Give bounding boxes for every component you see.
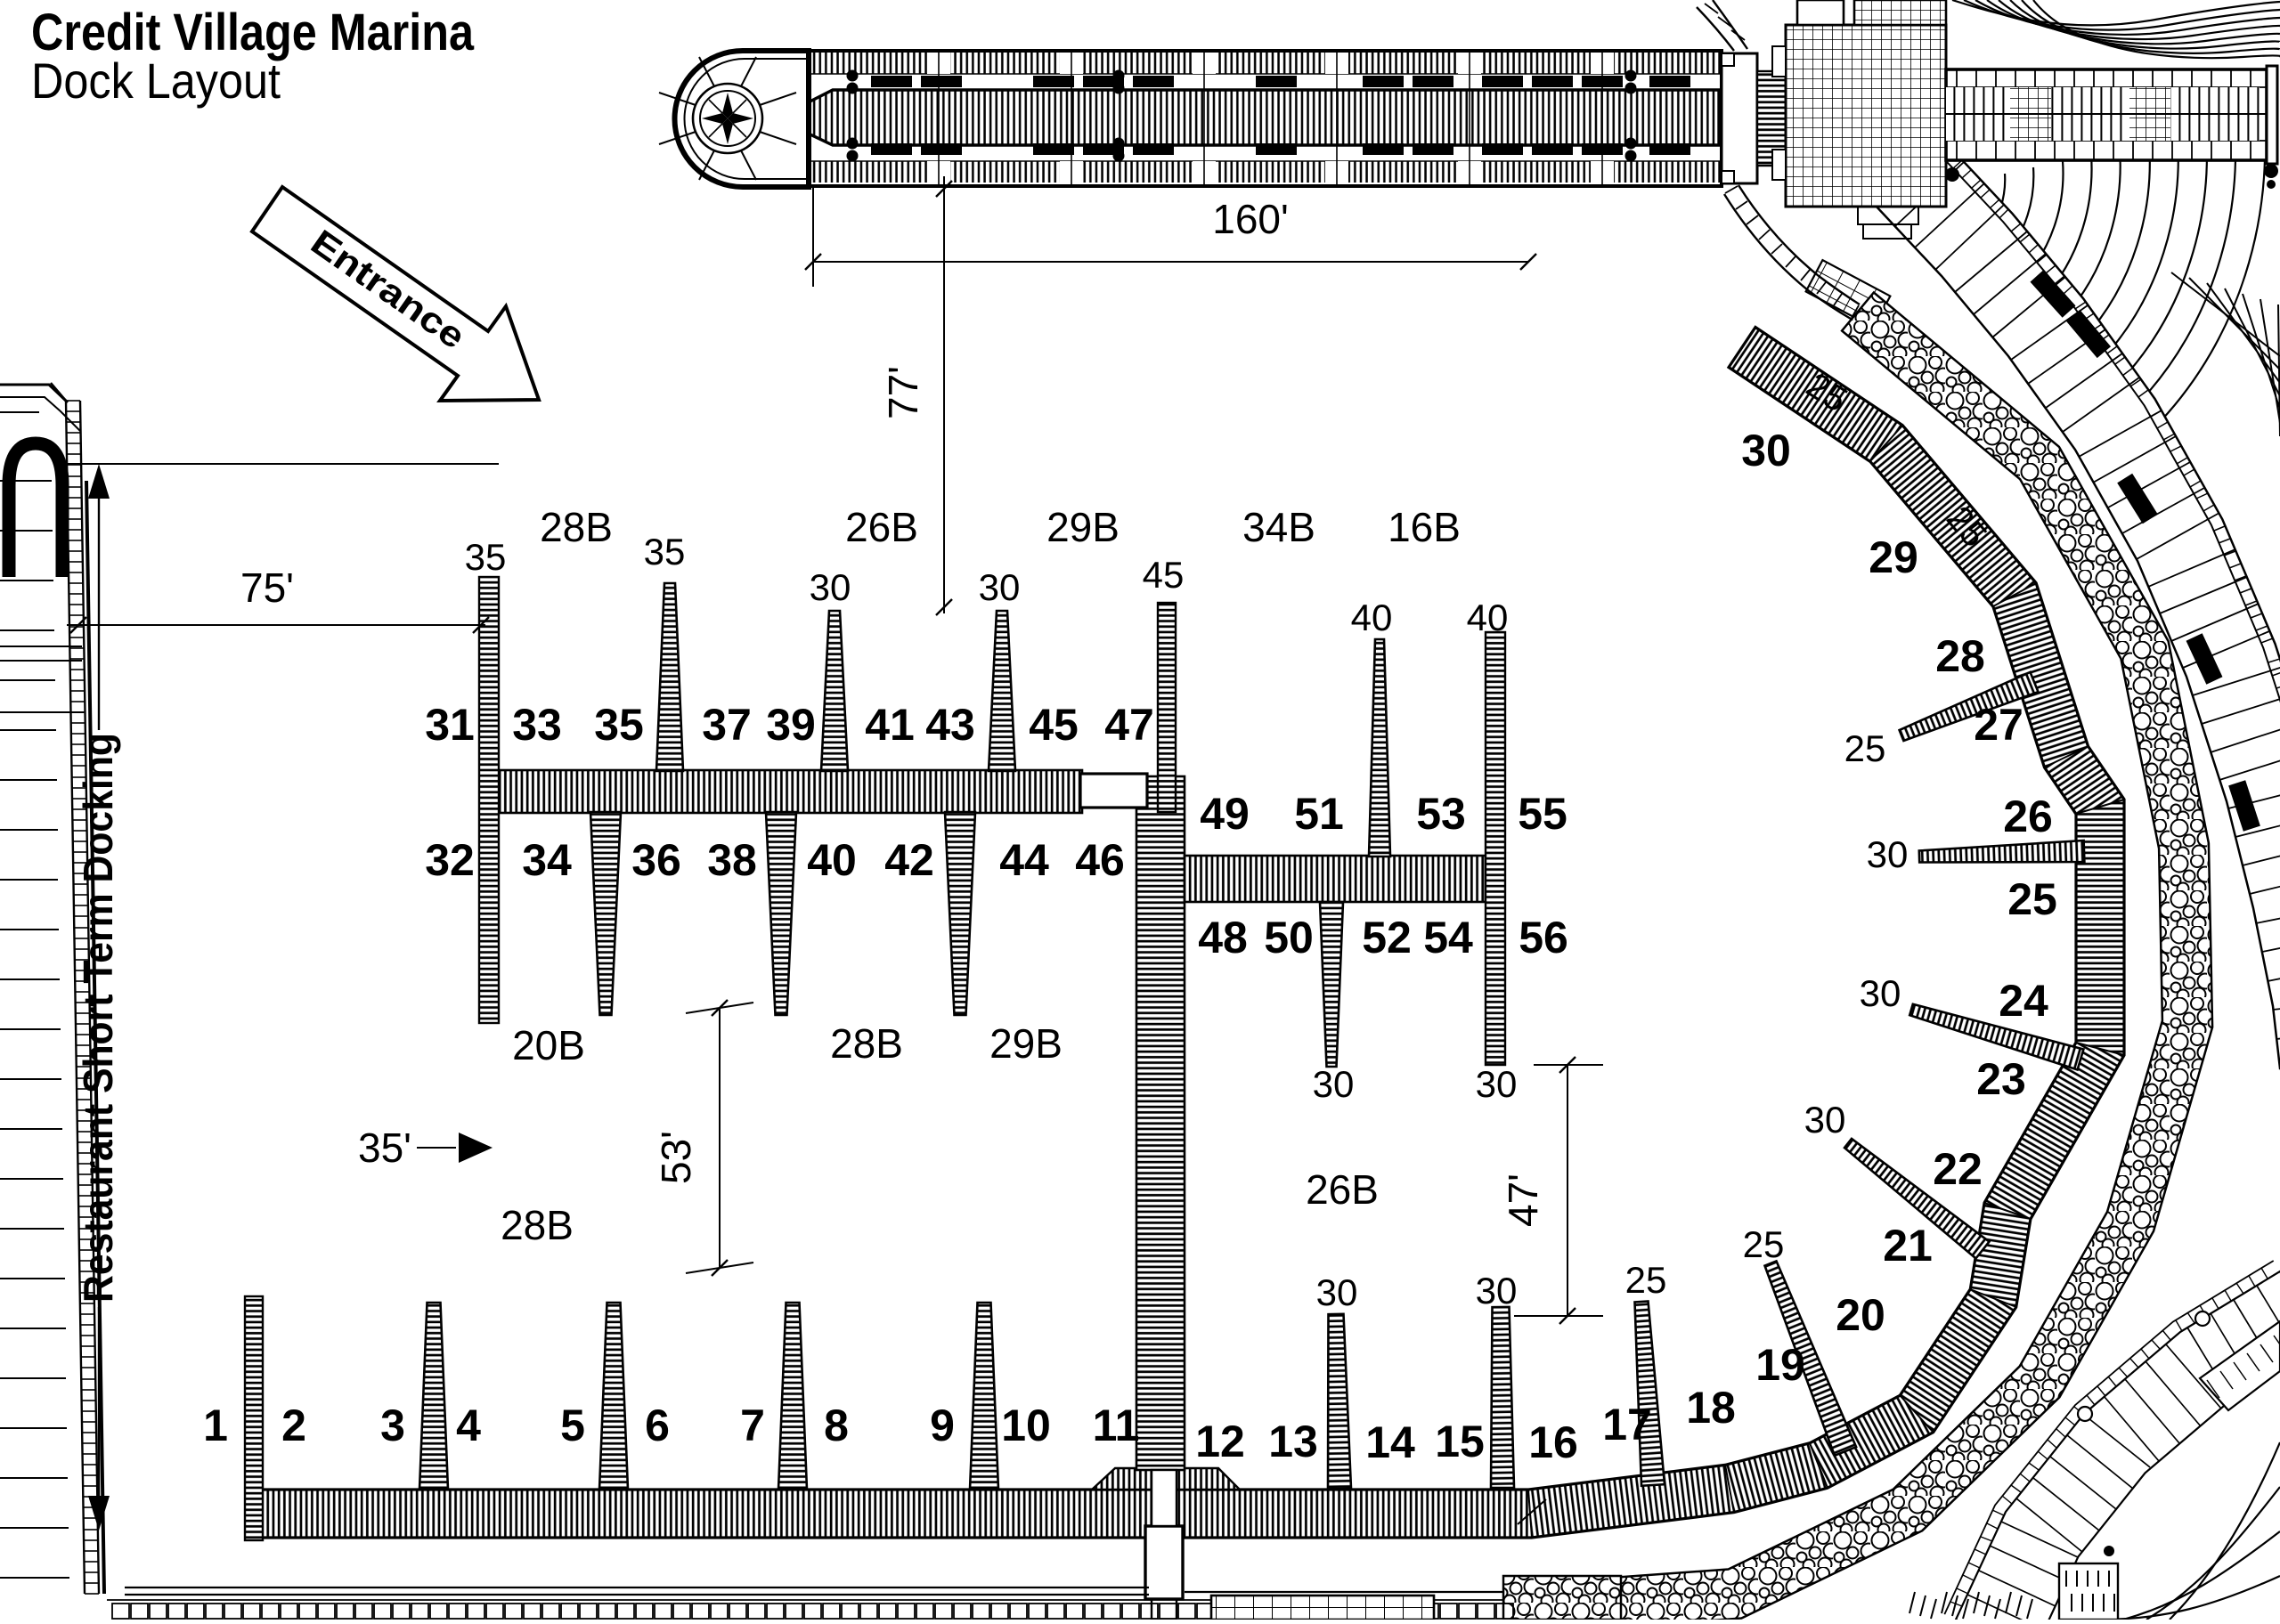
svg-text:35: 35 <box>594 700 644 750</box>
svg-text:49: 49 <box>1200 789 1250 839</box>
svg-text:77': 77' <box>880 366 926 419</box>
svg-text:20: 20 <box>1836 1290 1885 1340</box>
svg-text:10: 10 <box>1001 1401 1051 1450</box>
svg-text:40: 40 <box>1351 597 1393 638</box>
svg-text:6: 6 <box>645 1401 670 1450</box>
svg-text:13: 13 <box>1268 1417 1318 1466</box>
svg-text:Dock Layout: Dock Layout <box>31 53 281 109</box>
svg-text:28B: 28B <box>830 1020 903 1067</box>
svg-text:42: 42 <box>884 835 934 885</box>
svg-text:29B: 29B <box>989 1020 1063 1067</box>
svg-text:34: 34 <box>522 835 572 885</box>
svg-text:35: 35 <box>465 536 507 578</box>
svg-text:5: 5 <box>560 1401 585 1450</box>
svg-text:30: 30 <box>1741 426 1791 475</box>
svg-text:51: 51 <box>1294 789 1344 839</box>
svg-text:11: 11 <box>1093 1401 1140 1450</box>
svg-text:2: 2 <box>281 1401 306 1450</box>
svg-text:16: 16 <box>1528 1417 1578 1467</box>
svg-text:1: 1 <box>203 1401 228 1450</box>
svg-text:53': 53' <box>653 1131 699 1184</box>
svg-text:21: 21 <box>1883 1221 1933 1271</box>
svg-text:30: 30 <box>1867 833 1909 875</box>
svg-text:20B: 20B <box>512 1022 585 1068</box>
svg-text:30: 30 <box>1476 1063 1518 1105</box>
svg-text:28B: 28B <box>540 504 613 550</box>
svg-text:22: 22 <box>1933 1144 1983 1194</box>
svg-text:47: 47 <box>1104 700 1154 750</box>
svg-text:12: 12 <box>1195 1417 1245 1466</box>
svg-text:25: 25 <box>1625 1259 1667 1301</box>
svg-text:19: 19 <box>1755 1340 1805 1390</box>
svg-text:47': 47' <box>1500 1173 1546 1227</box>
svg-text:24: 24 <box>1999 976 2048 1026</box>
svg-text:18: 18 <box>1686 1383 1736 1433</box>
svg-text:30: 30 <box>979 566 1021 608</box>
svg-text:29: 29 <box>1869 532 1918 582</box>
svg-text:30: 30 <box>1316 1271 1358 1313</box>
svg-text:56: 56 <box>1519 913 1568 962</box>
svg-text:43: 43 <box>925 700 975 750</box>
svg-text:75': 75' <box>240 564 294 611</box>
svg-text:41: 41 <box>865 700 915 750</box>
svg-text:46: 46 <box>1075 835 1125 885</box>
svg-text:35': 35' <box>358 1125 411 1171</box>
svg-text:8: 8 <box>824 1401 849 1450</box>
svg-text:26: 26 <box>2003 792 2053 841</box>
svg-text:34B: 34B <box>1242 504 1315 550</box>
svg-text:25: 25 <box>1844 727 1886 769</box>
svg-text:25: 25 <box>2007 874 2057 924</box>
svg-text:40: 40 <box>1467 597 1509 638</box>
svg-text:160': 160' <box>1212 196 1289 242</box>
svg-text:44: 44 <box>999 835 1049 885</box>
svg-text:36: 36 <box>631 835 681 885</box>
svg-text:31: 31 <box>425 700 475 750</box>
svg-text:9: 9 <box>930 1401 955 1450</box>
svg-text:48: 48 <box>1198 913 1248 962</box>
svg-text:30: 30 <box>1476 1270 1518 1311</box>
svg-text:15: 15 <box>1435 1417 1485 1466</box>
svg-text:14: 14 <box>1365 1417 1415 1467</box>
svg-text:45: 45 <box>1029 700 1079 750</box>
svg-text:35: 35 <box>644 531 686 572</box>
svg-text:28B: 28B <box>501 1202 574 1248</box>
svg-text:30: 30 <box>1860 972 1901 1014</box>
svg-text:7: 7 <box>740 1401 765 1450</box>
svg-text:53: 53 <box>1416 789 1466 839</box>
svg-text:27: 27 <box>1974 700 2023 750</box>
svg-text:30: 30 <box>1804 1099 1846 1141</box>
svg-text:Restaurant Short Term Docking: Restaurant Short Term Docking <box>75 733 121 1303</box>
svg-text:30: 30 <box>810 566 851 608</box>
svg-text:52: 52 <box>1362 913 1412 962</box>
svg-text:4: 4 <box>456 1401 481 1450</box>
svg-text:3: 3 <box>380 1401 405 1450</box>
svg-text:45: 45 <box>1143 554 1185 596</box>
svg-text:29B: 29B <box>1046 504 1120 550</box>
svg-text:38: 38 <box>707 835 757 885</box>
svg-text:39: 39 <box>766 700 816 750</box>
svg-text:28: 28 <box>1935 631 1985 681</box>
svg-text:17: 17 <box>1602 1400 1652 1449</box>
svg-text:54: 54 <box>1423 913 1473 962</box>
svg-text:37: 37 <box>702 700 752 750</box>
svg-text:55: 55 <box>1518 789 1567 839</box>
svg-text:33: 33 <box>512 700 562 750</box>
svg-text:26B: 26B <box>845 504 918 550</box>
svg-text:32: 32 <box>425 835 475 885</box>
svg-text:40: 40 <box>807 835 857 885</box>
svg-text:23: 23 <box>1976 1054 2026 1104</box>
svg-text:50: 50 <box>1264 913 1314 962</box>
svg-text:30: 30 <box>1313 1063 1355 1105</box>
svg-text:25: 25 <box>1743 1223 1785 1265</box>
svg-text:26B: 26B <box>1306 1166 1379 1213</box>
svg-text:16B: 16B <box>1388 504 1461 550</box>
